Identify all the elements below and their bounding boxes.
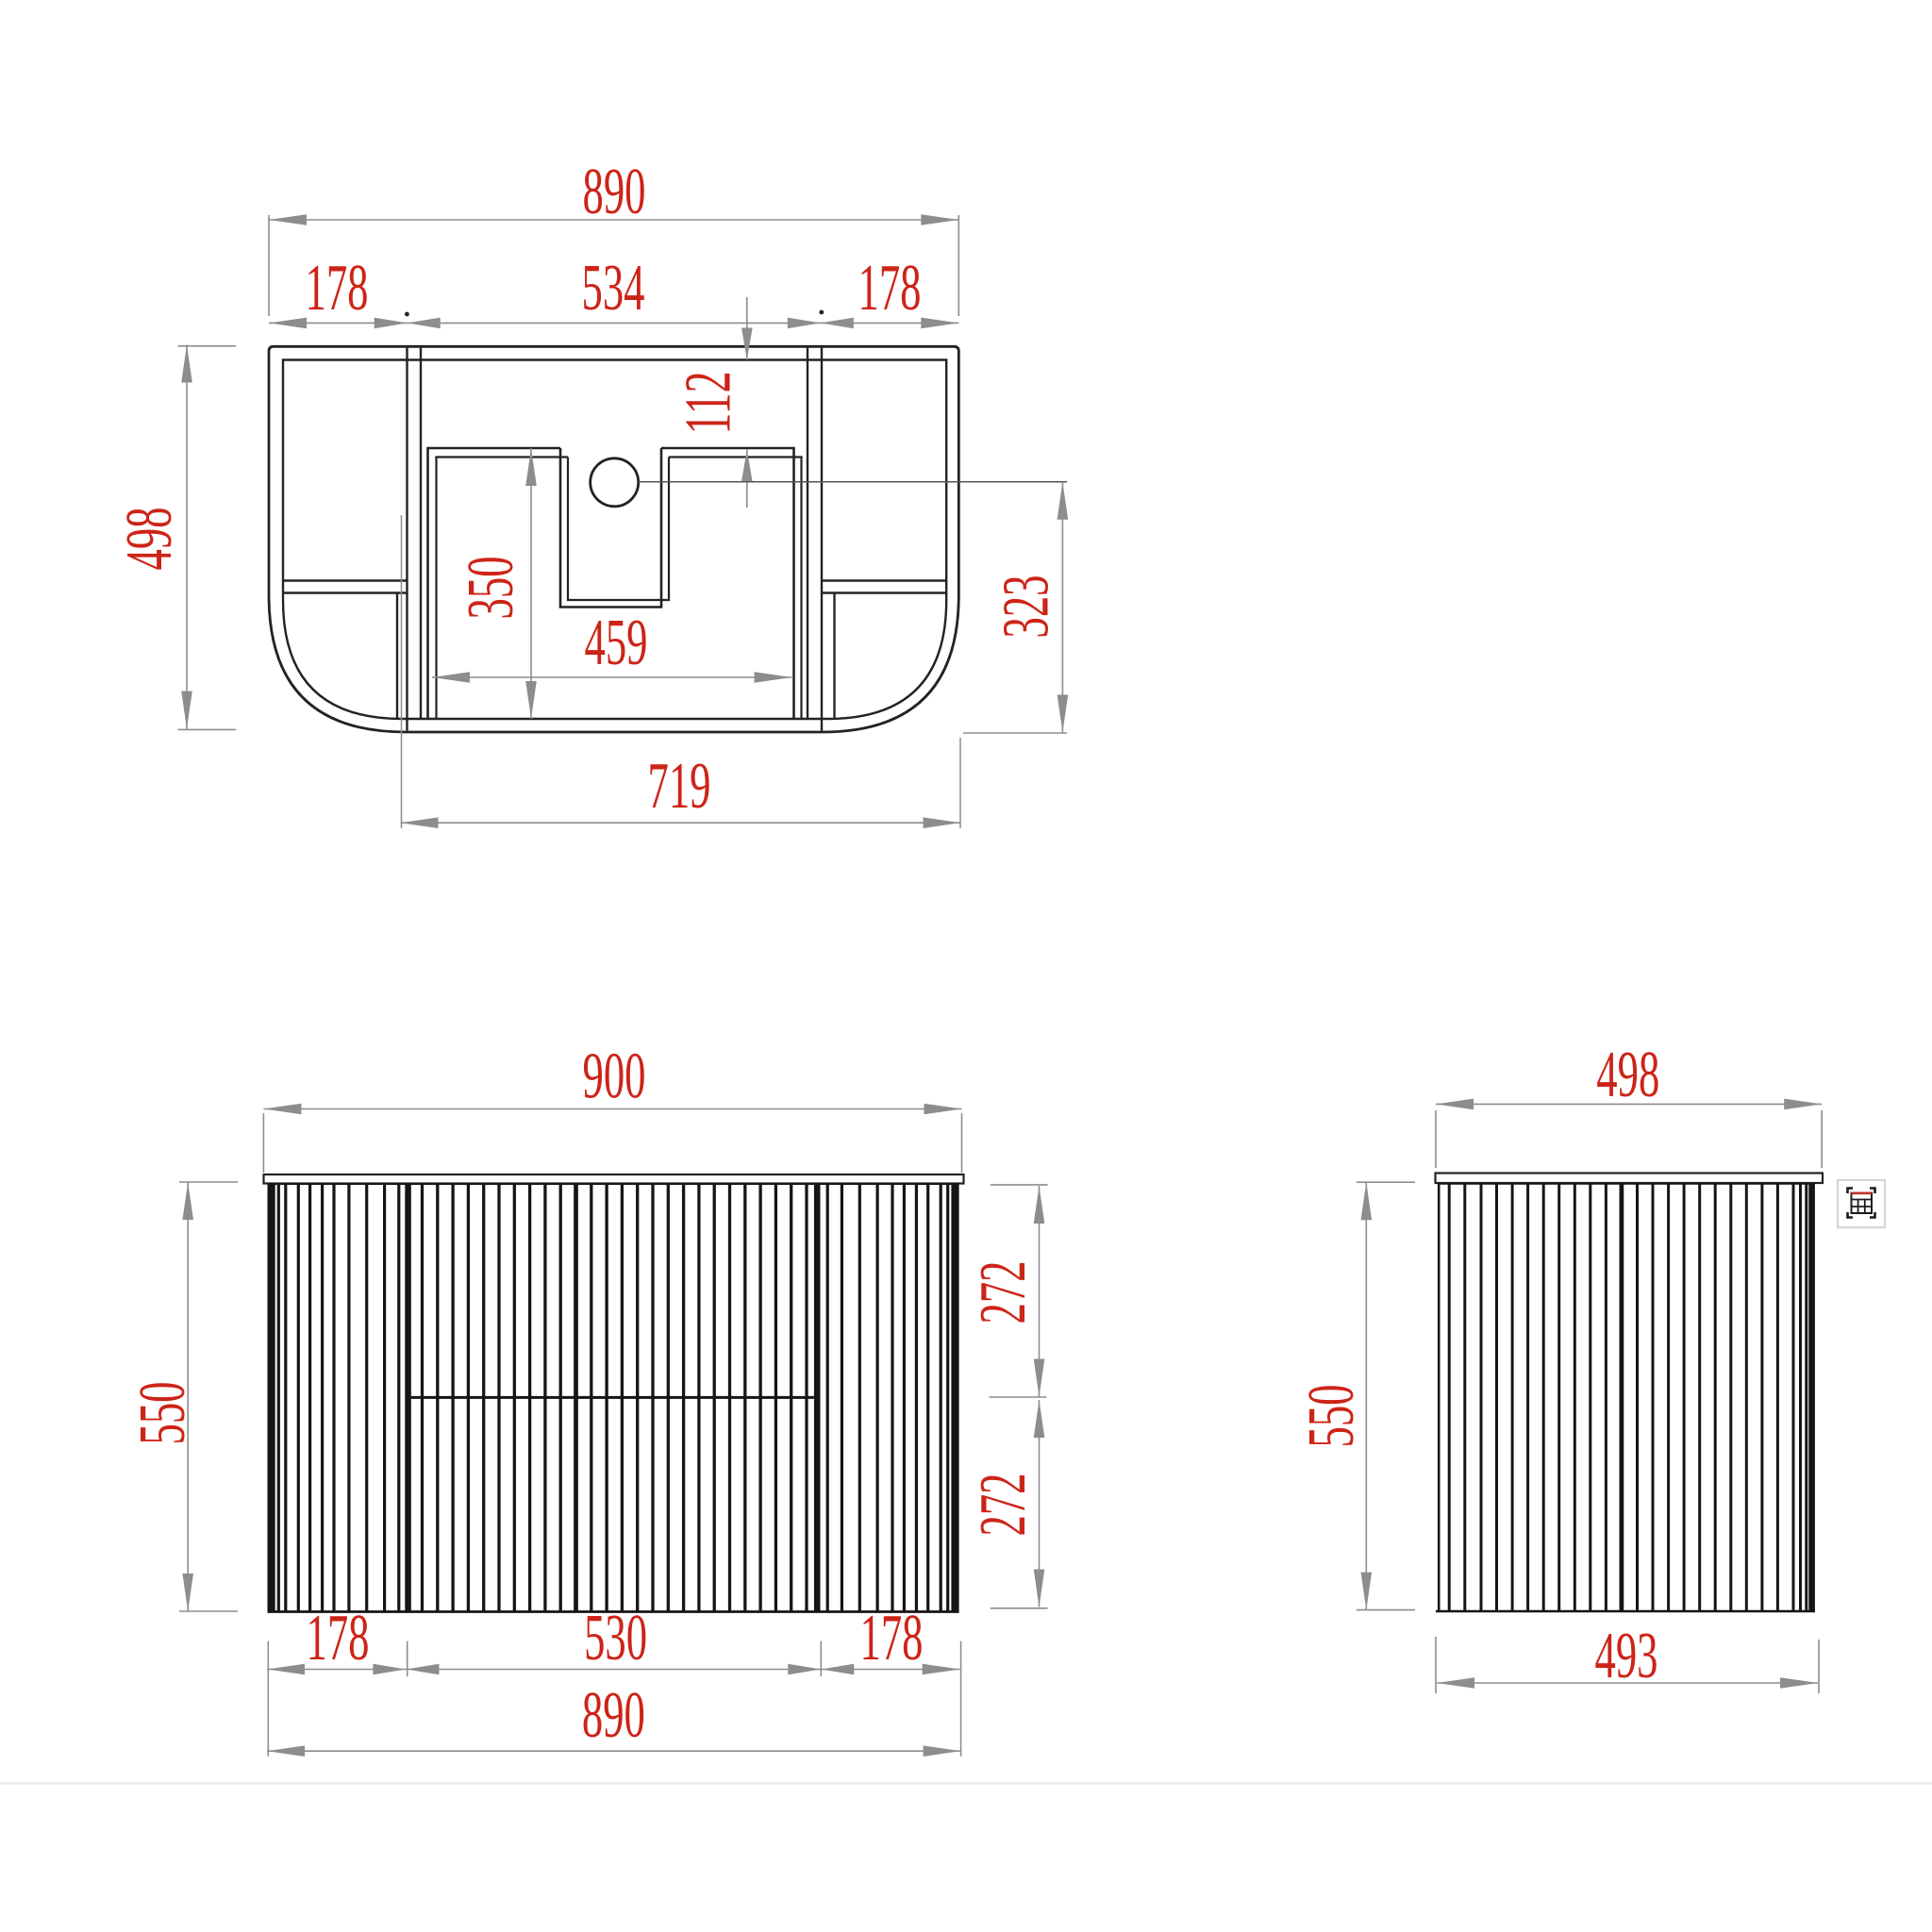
svg-text:493: 493 [1595, 1620, 1658, 1692]
svg-text:498: 498 [113, 508, 186, 571]
svg-text:534: 534 [582, 252, 645, 325]
svg-text:178: 178 [306, 252, 369, 325]
svg-text:272: 272 [967, 1474, 1040, 1537]
svg-text:530: 530 [584, 1602, 647, 1674]
svg-text:112: 112 [673, 372, 745, 435]
svg-text:550: 550 [126, 1382, 199, 1445]
svg-text:459: 459 [585, 607, 648, 679]
svg-text:890: 890 [582, 1679, 645, 1752]
svg-text:350: 350 [455, 557, 527, 620]
svg-text:890: 890 [583, 156, 646, 228]
svg-text:550: 550 [1295, 1385, 1368, 1448]
svg-text:719: 719 [648, 750, 711, 823]
svg-text:178: 178 [858, 252, 922, 325]
svg-text:178: 178 [307, 1602, 370, 1674]
svg-text:498: 498 [1596, 1039, 1659, 1111]
svg-text:900: 900 [583, 1041, 646, 1113]
svg-text:323: 323 [991, 575, 1063, 639]
svg-text:272: 272 [967, 1261, 1040, 1324]
svg-text:178: 178 [860, 1602, 924, 1674]
